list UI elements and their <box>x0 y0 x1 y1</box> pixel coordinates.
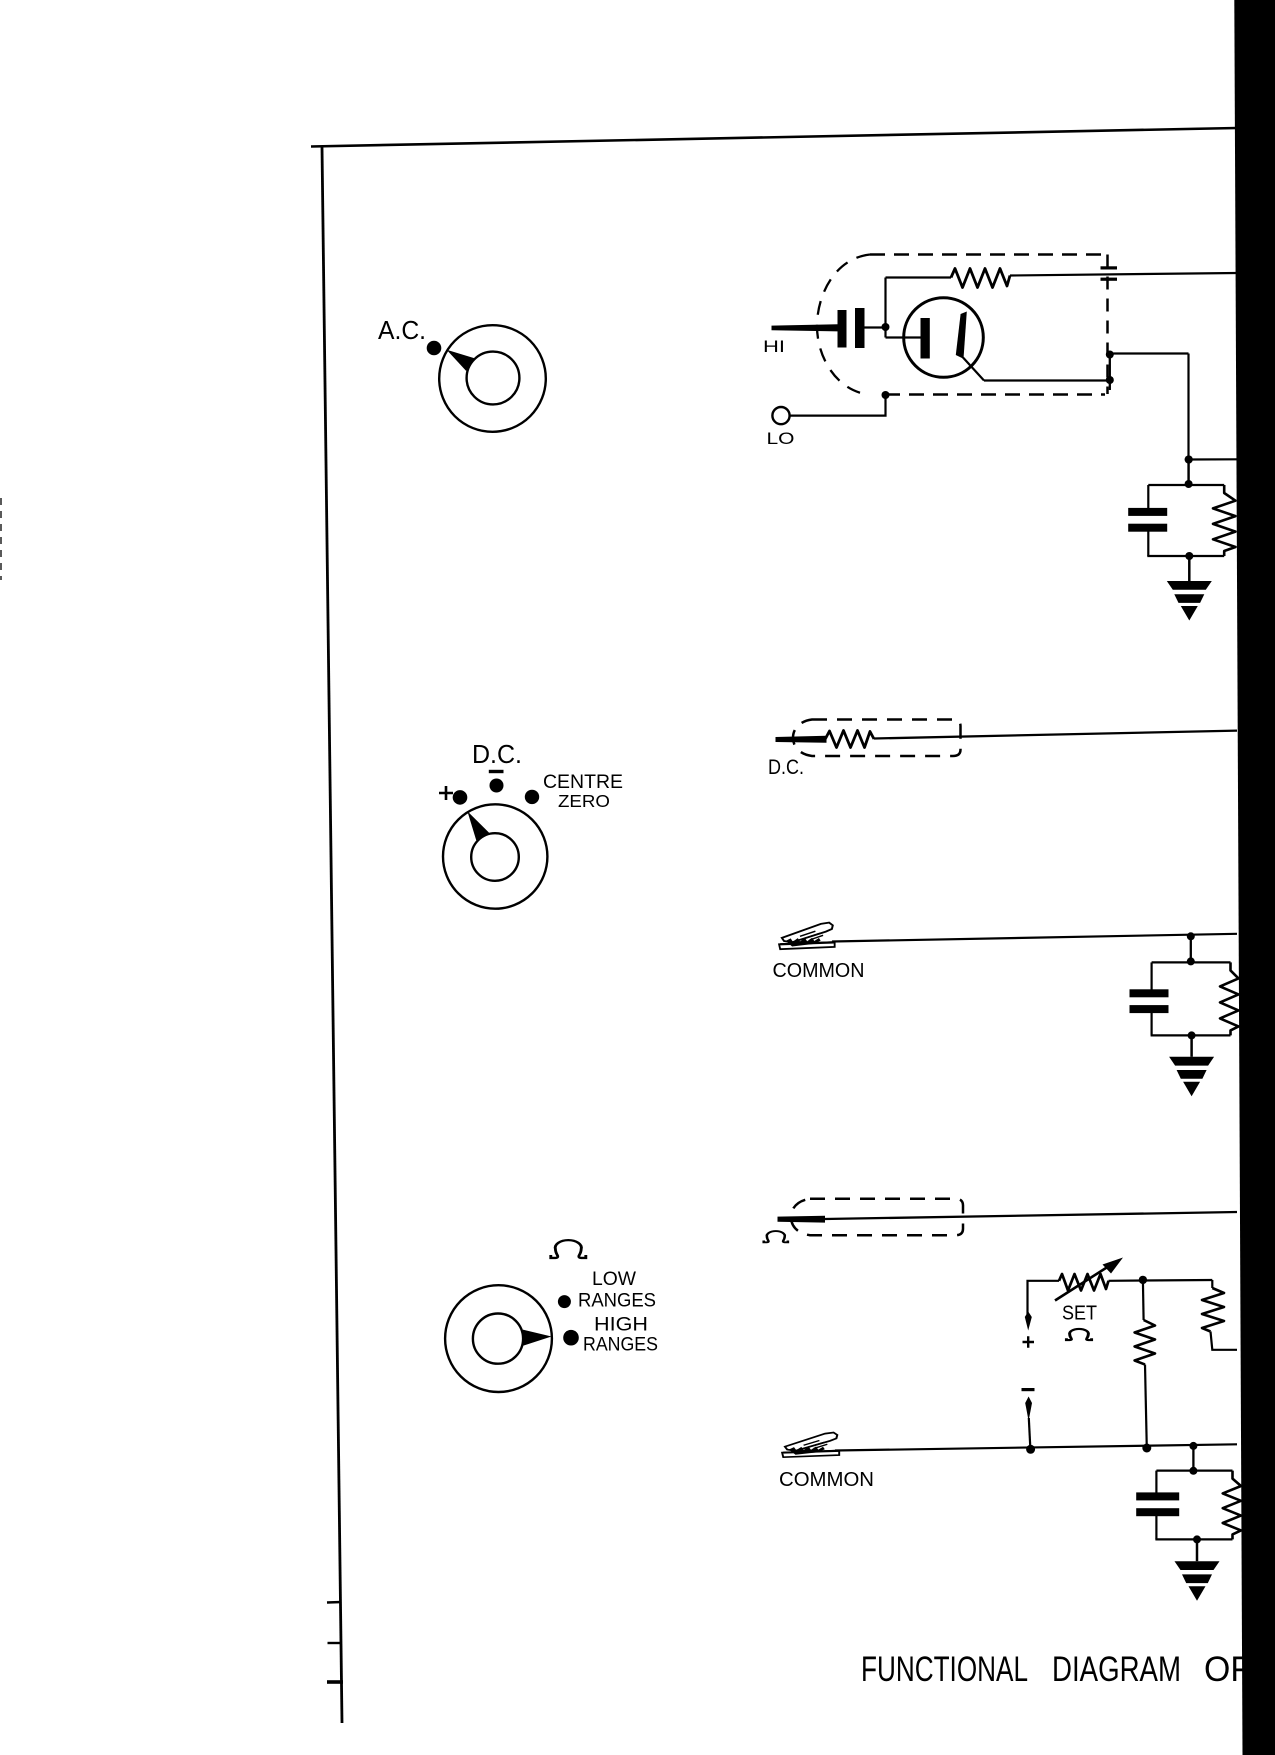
svg-text:CENTRE: CENTRE <box>543 772 623 793</box>
svg-text:RANGES: RANGES <box>583 1335 658 1356</box>
svg-text:LOW: LOW <box>592 1269 636 1290</box>
svg-text:D.C.: D.C. <box>472 739 522 769</box>
svg-text:SET: SET <box>1062 1303 1097 1325</box>
svg-text:HIGH: HIGH <box>594 1315 648 1336</box>
svg-text:FUNCTIONAL: FUNCTIONAL <box>861 1650 1028 1689</box>
svg-text:RANGES: RANGES <box>578 1291 656 1312</box>
svg-text:COMMON: COMMON <box>779 1469 874 1491</box>
svg-text:HI: HI <box>763 337 785 356</box>
svg-text:DIAGRAM: DIAGRAM <box>1052 1650 1181 1689</box>
svg-text:ZERO: ZERO <box>558 791 610 811</box>
svg-text:LO: LO <box>767 429 795 448</box>
svg-text:COMMON: COMMON <box>773 960 865 982</box>
svg-text:A.C.: A.C. <box>378 315 426 345</box>
svg-text:D.C.: D.C. <box>768 756 804 779</box>
